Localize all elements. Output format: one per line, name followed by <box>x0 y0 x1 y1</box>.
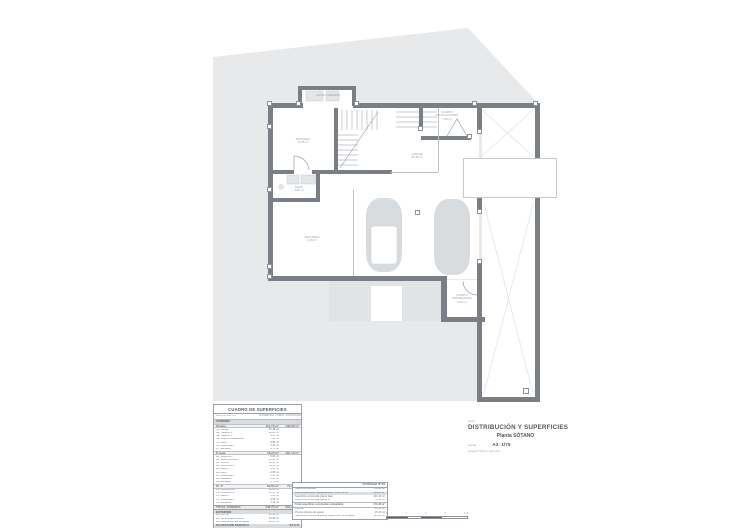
pillar <box>267 187 272 192</box>
util: 78.20 m² <box>259 452 279 455</box>
wall <box>272 198 320 202</box>
scale-bar-segments <box>386 516 468 518</box>
value: 130.80 m² <box>373 515 385 518</box>
wall <box>477 264 482 281</box>
label: B9. Escalera <box>216 481 259 484</box>
header-util: SUPERFICIE ÚTIL <box>259 415 279 418</box>
built: 101.10 m² <box>279 452 299 455</box>
util: 55.80 m² <box>259 485 279 488</box>
pillar <box>267 101 272 106</box>
partition-line <box>390 172 438 173</box>
util: 4.72 m² <box>259 448 279 451</box>
wall <box>334 170 392 174</box>
built: 130.80 m² <box>279 425 299 428</box>
wall <box>419 108 423 128</box>
room-label-garage: GARAJE 55.48 m² <box>395 153 439 160</box>
label: E3. Piscina (lámina de agua) <box>216 521 259 524</box>
label: 1 <box>406 513 407 515</box>
util: 4.72 m² <box>259 502 279 505</box>
title-block: plano DISTRIBUCIÓN Y SUPERFICIES Planta … <box>468 419 563 453</box>
pillar <box>472 101 477 106</box>
doc-type-label: plano <box>468 419 563 423</box>
room-label-pump-room: CUARTO DEPURADORA 5.20 m² <box>440 294 484 304</box>
scale-caption: escala <box>468 443 476 447</box>
ramp-platform <box>463 158 557 198</box>
label: Pl. 1ª <box>216 485 259 488</box>
util: 114.75 m² <box>259 425 279 428</box>
label: 3 <box>445 513 446 515</box>
label: Sótano <box>216 425 259 428</box>
wall <box>421 136 471 140</box>
pillar <box>477 209 482 214</box>
room-label-utility-room: CUARTO INSTALACIONES 7.08 m² <box>425 111 469 121</box>
room-label-bathroom: BAÑO 3.80 m² <box>277 186 321 193</box>
pillar <box>418 126 423 131</box>
pillar <box>267 124 272 129</box>
partition-line <box>353 190 354 276</box>
dwelling-summary-body: VIVIENDA Nº29Superficie parcela478.98 m²… <box>293 483 387 519</box>
label: Total superficie construida computable <box>295 504 343 507</box>
label: OCUPACIÓN PARCELA <box>216 524 259 527</box>
car-right <box>434 199 470 275</box>
car-left-cabin <box>371 226 397 264</box>
label: P5. Escalera <box>216 502 259 505</box>
sheet-subtitle: Planta SÓTANO <box>468 433 563 439</box>
label: TOTAL VIVIENDA <box>216 506 259 509</box>
sheet-title: DISTRIBUCIÓN Y SUPERFICIES <box>468 424 563 431</box>
room-label-storage-2: TRASTERO 9.15 m² <box>290 236 334 243</box>
label: 2 <box>425 513 426 515</box>
wall <box>535 103 540 402</box>
wall <box>268 103 273 281</box>
ramp-hatch-lines <box>482 110 533 393</box>
wall <box>353 103 540 108</box>
util: 18.90 m² <box>259 521 279 524</box>
built: 27.3 % <box>279 524 299 527</box>
graphic-scale-bar: 01234 m <box>386 513 468 519</box>
label: Superficie construida planta 1ª <box>295 499 330 502</box>
wall <box>272 170 294 174</box>
value: 173.46 m² <box>373 504 385 507</box>
wall <box>298 86 356 90</box>
label: P. baja <box>216 452 259 455</box>
value: 72.36 m² <box>375 499 385 502</box>
util: 4.72 m² <box>259 481 279 484</box>
scale-value: A3: 1/75 <box>492 443 510 448</box>
scale-row: escala A3: 1/75 <box>468 443 563 448</box>
drain-box <box>523 388 529 394</box>
header-built: SUP. CONSTRUIDA <box>279 415 299 418</box>
room-label-pressure-unit: GRUPO PRESIÓN <box>306 94 350 97</box>
pillar <box>477 129 482 134</box>
value: VIVIENDA Nº29 <box>362 483 385 486</box>
label: EXTERIOR <box>216 511 259 514</box>
util: 248.75 m² <box>259 506 279 509</box>
dwelling-summary-table: VIVIENDA Nº29Superficie parcela478.98 m²… <box>292 482 388 520</box>
label: VIVIENDA <box>216 420 259 423</box>
header-name: DENOMINACIÓN <box>216 415 259 418</box>
label: 0 <box>386 513 387 515</box>
surfaces-table: CUADRO DE SUPERFICIES DENOMINACIÓN SUPER… <box>213 404 302 528</box>
surfaces-table-row: OCUPACIÓN PARCELA27.3 % <box>214 524 301 528</box>
surfaces-table-body: VIVIENDASótano114.75 m²130.80 m²S1. Gara… <box>214 420 301 528</box>
pillar <box>267 264 272 269</box>
wall <box>334 108 338 174</box>
detail-layer <box>0 0 756 528</box>
pillar <box>467 134 472 139</box>
dwelling-summary-row: Superficie construida planta sótano (no … <box>293 515 387 519</box>
label: Superficie construida planta sótano (no … <box>295 515 355 518</box>
pillar <box>415 210 420 215</box>
pillar <box>533 101 538 106</box>
label: 4 m <box>464 513 468 515</box>
pillar <box>477 259 482 264</box>
pillar <box>296 101 301 106</box>
scale-bar-labels: 01234 m <box>386 513 468 515</box>
label: S7. Escalera <box>216 448 259 451</box>
project-phase-label: proyecto básico y ejecución <box>468 450 563 453</box>
surfaces-table-title: CUADRO DE SUPERFICIES <box>214 405 301 414</box>
pillar <box>354 101 359 106</box>
drawing-sheet: GRUPO PRESIÓN TRASTERO 12.05 m² BAÑO 3.8… <box>0 0 756 528</box>
wall <box>479 397 540 402</box>
room-label-storage-1: TRASTERO 12.05 m² <box>281 138 325 145</box>
pillar <box>267 274 272 279</box>
wall <box>268 276 447 281</box>
wall <box>441 317 485 322</box>
